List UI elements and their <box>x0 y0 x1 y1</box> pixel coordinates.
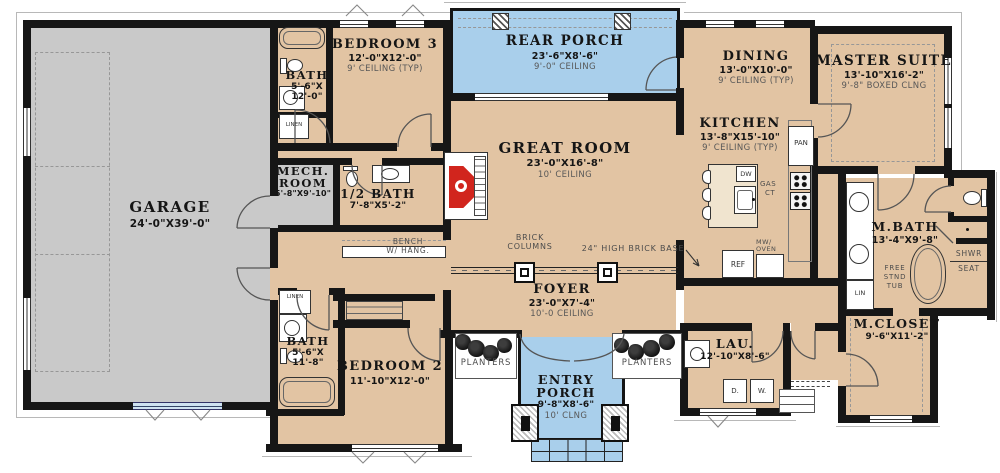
bench-label: BENCH <box>393 238 423 246</box>
room-name-rear-porch: REAR PORCH <box>506 35 625 49</box>
room-name-kitchen: KITCHEN <box>699 117 780 130</box>
room-ceiling-bedroom3: 9' CEILING (TYP) <box>347 65 423 74</box>
room-dims-mech: 5'-8"X9'-10" <box>275 190 331 198</box>
room-name-garage: GARAGE <box>129 200 210 215</box>
shower-label: SHWR <box>956 250 982 258</box>
room-dims-kitchen: 13'-8"X15'-10" <box>700 133 780 143</box>
room-name-foyer: FOYER <box>533 283 591 296</box>
room-name-half-bath: 1/2 BATH <box>340 188 416 200</box>
planters-label: PLANTERS <box>622 359 673 368</box>
room-dims-garage: 24'-0"X39'-0" <box>130 219 211 230</box>
room-ceiling-foyer: 10'-0 CEILING <box>530 310 594 319</box>
room-dims-master: 13'-10"X16'-2" <box>844 71 924 81</box>
room-dims-half-bath: 7'-8"X5'-2" <box>350 202 407 211</box>
room-dims-great-room: 23'-0"X16'-8" <box>527 159 604 169</box>
room-dims-dining: 13'-0"X10'-0" <box>719 66 792 76</box>
room-dims-bedroom3: 12'-0"X12'-0" <box>348 54 421 64</box>
brick-base-label: 24" HIGH BRICK BASE <box>582 245 685 253</box>
room-name-master: MASTER SUITE <box>816 55 952 69</box>
room-name-mbath: M.BATH <box>871 221 938 234</box>
free-standing-tub-label: STND <box>884 274 907 281</box>
room-dims-laundry: 12'-10"X8'-6" <box>700 353 769 362</box>
room-dims-mcloset: 9'-6"X11'-2" <box>865 333 928 342</box>
room-dims-foyer: 23'-0"X7'-4" <box>529 299 595 309</box>
room-dims-bath-top: 12'-0" <box>291 93 322 102</box>
room-ceiling-entry-porch: 10' CLNG <box>545 412 588 421</box>
room-dims-rear-porch: 23'-6"X8'-6" <box>532 52 598 62</box>
room-name-laundry: LAU. <box>716 338 754 351</box>
room-name-bath-top: BATH <box>285 70 328 82</box>
room-dims-bedroom2: 11'-10"X12'-0" <box>350 377 430 387</box>
planters-label: PLANTERS <box>461 359 512 368</box>
room-ceiling-rear-porch: 9'-0" CEILING <box>534 63 596 72</box>
room-ceiling-kitchen: 9' CEILING (TYP) <box>702 144 778 153</box>
room-ceiling-dining: 9' CEILING (TYP) <box>718 77 794 86</box>
room-dims-mbath: 13'-4"X9'-8" <box>872 236 938 246</box>
room-name-entry-porch: PORCH <box>536 387 595 400</box>
room-name-bedroom2: BEDROOM 2 <box>337 360 443 373</box>
floor-plan: LINEN LINEN PAN GAS CT DW REF MW/ OVEN L… <box>0 0 1000 473</box>
room-ceiling-master: 9'-8" BOXED CLNG <box>841 82 926 91</box>
room-name-bath-lower: BATH <box>286 336 329 348</box>
bench-label: W/ HANG. <box>386 247 429 255</box>
room-dims-entry-porch: 9'-8"X8'-6" <box>538 401 595 410</box>
room-dims-bath-top: 5'-6"X <box>291 83 323 92</box>
room-name-dining: DINING <box>723 50 790 63</box>
room-name-mcloset: M.CLOSET <box>854 318 941 331</box>
free-standing-tub-label: TUB <box>887 283 904 290</box>
room-name-great-room: GREAT ROOM <box>498 141 631 156</box>
room-name-bedroom3: BEDROOM 3 <box>332 38 438 51</box>
room-name-mech: ROOM <box>279 178 327 190</box>
room-ceiling-great-room: 10' CEILING <box>538 171 592 180</box>
free-standing-tub-label: FREE <box>885 265 906 272</box>
room-dims-bath-lower: 5'-6"X <box>292 349 324 358</box>
room-dims-bath-lower: 11'-8" <box>292 359 323 368</box>
brick-columns-label: COLUMNS <box>507 243 552 251</box>
shower-seat-label: SEAT <box>958 265 980 273</box>
brick-columns-label: BRICK <box>516 234 544 242</box>
